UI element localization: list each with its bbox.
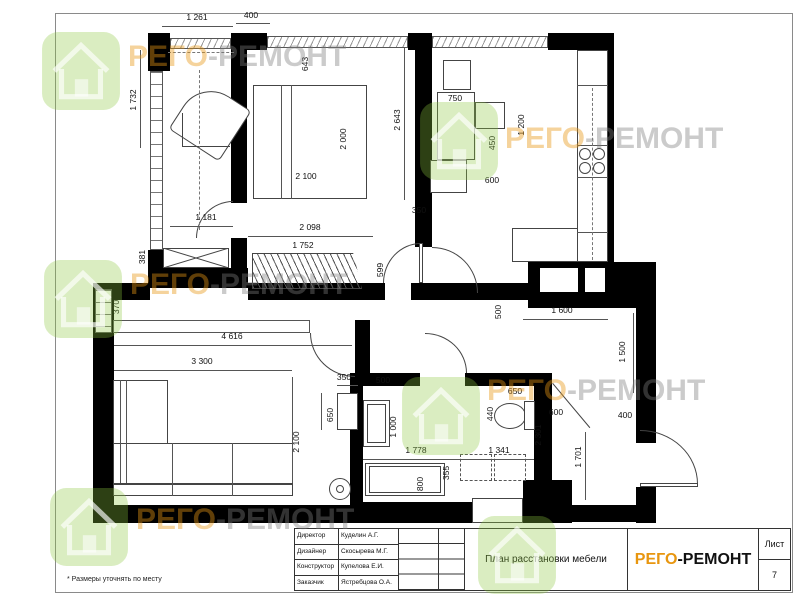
dimension-label: 643 (300, 57, 310, 71)
bed-headboard-line (291, 85, 292, 199)
entrance-door-leaf (640, 483, 698, 487)
dimension-label: 1 732 (128, 89, 138, 110)
dimension-label: 2 100 (295, 171, 316, 181)
dimension-label: 750 (448, 93, 462, 103)
kitchen-chair (430, 160, 467, 193)
dimension-label: 350 (412, 205, 426, 215)
wall-segment (148, 268, 248, 288)
wall-segment (411, 283, 432, 300)
stove-burner (593, 148, 605, 160)
door-leaf-bedroom (419, 243, 423, 283)
kitchen-counter-bottom (512, 228, 578, 262)
staff-role: Директор (295, 529, 339, 544)
sliding-wardrobe-hatched (252, 253, 362, 289)
kitchen-window (432, 36, 548, 48)
dimension-label: 350 (337, 372, 351, 382)
brand-logo-text: РЕГО-РЕМОНТ (628, 529, 759, 590)
dimension-label: 2 000 (338, 128, 348, 149)
dimension-label: 600 (485, 175, 499, 185)
dimension-label: 1 778 (405, 445, 426, 455)
bathtub-inner (369, 466, 441, 493)
desk-outline (182, 113, 230, 147)
dimension-label: 400 (244, 10, 258, 20)
dimension-label: 1 000 (388, 416, 398, 437)
wall-segment (93, 505, 355, 523)
dimension-label: 2 100 (291, 431, 301, 452)
dimension-label: 2 643 (392, 109, 402, 130)
vanity-sink-inner (367, 404, 386, 443)
counter-divider (577, 85, 608, 86)
wall-segment (415, 48, 432, 247)
brand-part-orange: РЕГО (635, 551, 678, 569)
dimension-label: 400 (618, 410, 632, 420)
sheet-number: 7 (759, 560, 790, 590)
sofa-front (113, 484, 293, 496)
wall-segment (572, 505, 656, 522)
dimension-label: 500 (376, 375, 390, 385)
staff-name: Куделин А.Г. (339, 529, 398, 544)
staff-row: Директор Куделин А.Г. (295, 529, 398, 545)
dimension-label: 599 (375, 263, 385, 277)
dimension-label: 381 (137, 250, 147, 264)
dimension-label: 1 752 (292, 240, 313, 250)
stove-burner (579, 162, 591, 174)
entry-step (472, 498, 523, 523)
wall-segment (148, 33, 170, 71)
bed (253, 85, 367, 199)
staff-name: Купелова Е.И. (339, 560, 398, 575)
living-room-window (95, 289, 112, 333)
wardrobe-crossed (163, 248, 229, 268)
stove-burner (593, 162, 605, 174)
wall-niche (540, 268, 578, 292)
dimension-label: 800 (415, 477, 425, 491)
staff-role: Дизайнер (295, 545, 339, 560)
wall-segment (355, 320, 370, 375)
staff-role: Заказчик (295, 576, 339, 591)
staff-name: Ястребцова О.А. (339, 576, 398, 591)
kitchen-chair (443, 60, 471, 90)
dimension-label: 2 098 (299, 222, 320, 232)
title-block-empty-column (439, 529, 465, 590)
staff-row: Дизайнер Скосырева М.Г. (295, 545, 398, 561)
wall-niche (585, 268, 605, 292)
toilet-bowl (494, 403, 526, 429)
dimension-label: 1 701 (573, 446, 583, 467)
wall-segment (350, 502, 472, 523)
sofa-line (126, 380, 127, 483)
dimension-label: 1 181 (195, 212, 216, 222)
window-top-left (170, 38, 231, 49)
partition-wall (113, 320, 310, 333)
dimension-label: 4 616 (221, 331, 242, 341)
dimension-label: 650 (325, 408, 335, 422)
drawing-title: План расстановки мебели (465, 529, 628, 590)
dimension-label: 600 (549, 407, 563, 417)
bedroom-window (267, 36, 408, 48)
dimension-label: 440 (485, 407, 495, 421)
side-table (337, 393, 358, 430)
sofa-line (172, 443, 173, 496)
sheet-number-cell: Лист 7 (759, 529, 790, 590)
dimension-label: 500 (493, 305, 503, 319)
stove-burner (579, 148, 591, 160)
kitchen-chair (475, 102, 505, 129)
staff-role: Конструктор (295, 560, 339, 575)
footnote: * Размеры уточнять по месту (67, 576, 162, 583)
dimension-label: 1 261 (186, 12, 207, 22)
dimension-label: 450 (487, 136, 497, 150)
dimension-label: 370 (111, 300, 121, 314)
curtain-dashed-line (199, 70, 200, 230)
dimension-label: 1 500 (617, 341, 627, 362)
staff-row: Заказчик Ястребцова О.А. (295, 576, 398, 591)
floor-lamp-center (336, 485, 344, 493)
dimension-label: 1 200 (516, 114, 526, 135)
brand-part-black: -РЕМОНТ (677, 551, 751, 569)
title-block-staff: Директор Куделин А.Г. Дизайнер Скосырева… (295, 529, 399, 590)
title-block-empty-column (399, 529, 439, 590)
dimension-label: 1 600 (551, 305, 572, 315)
drawing-sheet: 1 2614001 7326432 6432 0002 1007504501 2… (0, 0, 800, 600)
dimension-label: 2 301 (533, 424, 543, 445)
dimension-label: 650 (508, 386, 522, 396)
bed-headboard-line (281, 85, 282, 199)
wall-segment (636, 308, 656, 443)
sofa-seat (113, 443, 293, 484)
wall-segment (523, 480, 572, 523)
staff-row: Конструктор Купелова Е.И. (295, 560, 398, 576)
sheet-label: Лист (759, 529, 790, 560)
dimension-label: 3 300 (191, 356, 212, 366)
sofa-line (232, 443, 233, 496)
title-block: Директор Куделин А.Г. Дизайнер Скосырева… (294, 528, 791, 591)
upper-cabinet-dashed (592, 88, 593, 260)
curtain-dashed-line (168, 52, 234, 53)
dimension-label: 1 341 (488, 445, 509, 455)
sofa-line (120, 380, 121, 483)
staff-name: Скосырева М.Г. (339, 545, 398, 560)
dimension-label: 355 (441, 466, 451, 480)
balcony-window (150, 71, 163, 250)
